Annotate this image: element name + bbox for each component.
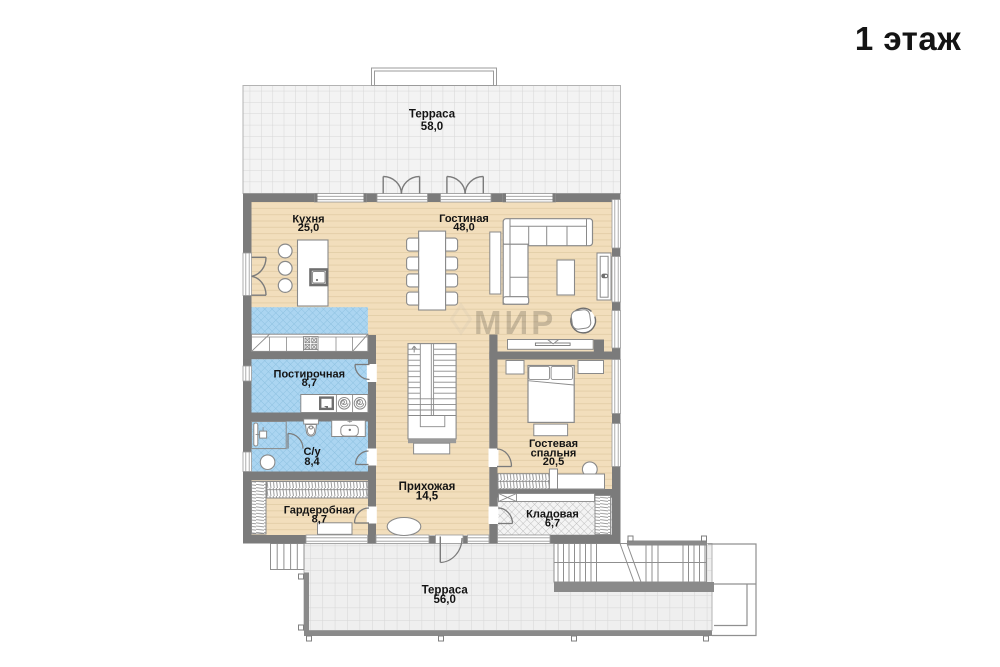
svg-text:25,0: 25,0 [298,222,319,234]
svg-text:56,0: 56,0 [434,594,456,606]
svg-text:МИР: МИР [474,304,556,341]
svg-text:1 этаж: 1 этаж [855,20,961,57]
svg-text:8,4: 8,4 [304,456,320,468]
svg-text:Терраса: Терраса [409,109,456,121]
svg-text:8,7: 8,7 [302,377,317,389]
svg-text:14,5: 14,5 [416,491,439,503]
svg-text:48,0: 48,0 [453,222,474,234]
svg-text:58,0: 58,0 [421,121,443,133]
svg-text:8,7: 8,7 [312,514,327,526]
svg-text:20,5: 20,5 [543,456,564,468]
svg-text:6,7: 6,7 [545,518,560,530]
